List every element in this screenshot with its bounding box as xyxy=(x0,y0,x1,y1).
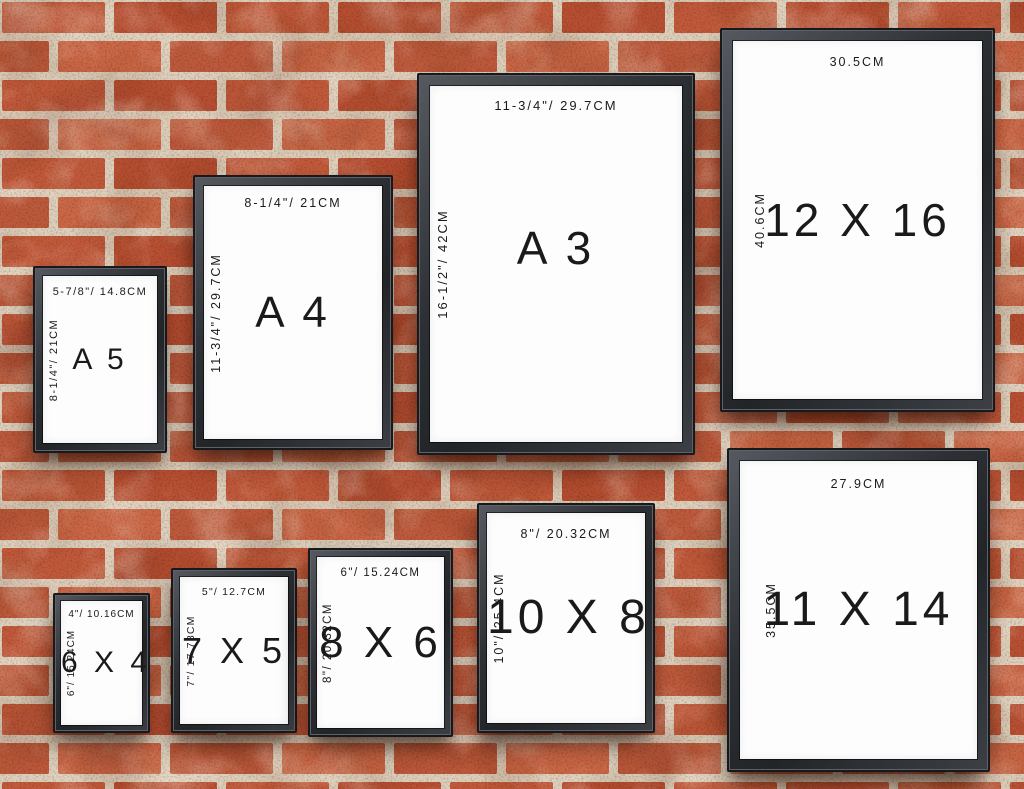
frame-paper: 6"/ 15.24CM 8"/ 20.32CM 8 X 6 xyxy=(317,557,444,728)
frame-6x4: 4"/ 10.16CM 6"/ 15.24CM 6 X 4 xyxy=(53,593,150,733)
frame-paper: 11-3/4"/ 29.7CM 16-1/2"/ 42CM A 3 xyxy=(430,86,682,442)
frame-size-name: 8 X 6 xyxy=(317,621,444,665)
frame-12x16: 30.5CM 40.6CM 12 X 16 xyxy=(720,28,995,412)
frame-width-label: 8-1/4"/ 21CM xyxy=(204,196,382,210)
frame-size-name: A 5 xyxy=(43,345,157,375)
frame-7x5: 5"/ 12.7CM 7"/ 17.78CM 7 X 5 xyxy=(171,568,297,733)
frame-size-chart-scene: 5-7/8"/ 14.8CM 8-1/4"/ 21CM A 5 8-1/4"/ … xyxy=(0,0,1024,789)
frame-paper: 4"/ 10.16CM 6"/ 15.24CM 6 X 4 xyxy=(61,601,142,725)
frame-paper: 5-7/8"/ 14.8CM 8-1/4"/ 21CM A 5 xyxy=(43,276,157,443)
frame-width-label: 27.9CM xyxy=(740,477,977,491)
frame-size-name: 11 X 14 xyxy=(740,586,977,634)
frame-11x14: 27.9CM 35.5CM 11 X 14 xyxy=(727,448,990,772)
frame-paper: 8"/ 20.32CM 10"/ 25.4CM 10 X 8 xyxy=(487,513,645,723)
frame-paper: 27.9CM 35.5CM 11 X 14 xyxy=(740,461,977,759)
frame-a4: 8-1/4"/ 21CM 11-3/4"/ 29.7CM A 4 xyxy=(193,175,393,450)
frame-width-label: 6"/ 15.24CM xyxy=(317,567,444,579)
frame-paper: 8-1/4"/ 21CM 11-3/4"/ 29.7CM A 4 xyxy=(204,186,382,439)
frame-paper: 30.5CM 40.6CM 12 X 16 xyxy=(733,41,982,399)
frame-size-name: 12 X 16 xyxy=(733,197,982,243)
frame-width-label: 5-7/8"/ 14.8CM xyxy=(43,286,157,298)
frame-size-name: A 4 xyxy=(204,291,382,335)
frame-a3: 11-3/4"/ 29.7CM 16-1/2"/ 42CM A 3 xyxy=(417,73,695,455)
frame-width-label: 11-3/4"/ 29.7CM xyxy=(430,98,682,113)
frame-size-name: A 3 xyxy=(430,225,682,271)
frame-size-name: 7 X 5 xyxy=(180,633,288,669)
frame-width-label: 4"/ 10.16CM xyxy=(61,609,142,620)
frame-size-name: 10 X 8 xyxy=(487,594,645,642)
frame-8x6: 6"/ 15.24CM 8"/ 20.32CM 8 X 6 xyxy=(308,548,453,737)
frame-10x8: 8"/ 20.32CM 10"/ 25.4CM 10 X 8 xyxy=(477,503,655,733)
frame-width-label: 8"/ 20.32CM xyxy=(487,527,645,541)
frame-width-label: 5"/ 12.7CM xyxy=(180,586,288,598)
frame-width-label: 30.5CM xyxy=(733,55,982,69)
frame-paper: 5"/ 12.7CM 7"/ 17.78CM 7 X 5 xyxy=(180,577,288,724)
frame-size-name: 6 X 4 xyxy=(61,648,142,678)
frame-a5: 5-7/8"/ 14.8CM 8-1/4"/ 21CM A 5 xyxy=(33,266,167,453)
